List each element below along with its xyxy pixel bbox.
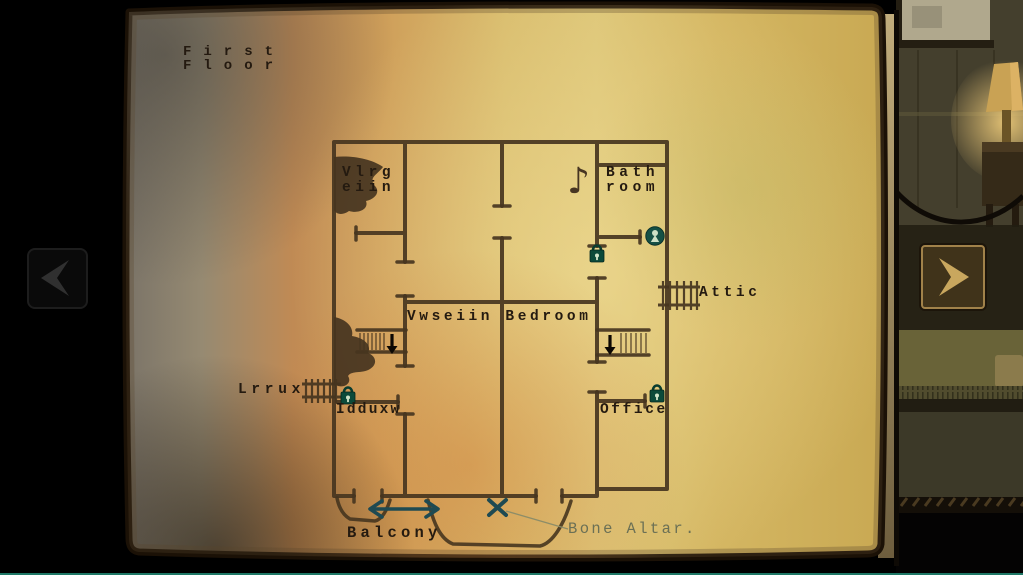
map-title-line2: Floor	[183, 59, 285, 73]
room-label-balcony: Balcony	[347, 524, 442, 542]
keyhole-marker-icon	[646, 227, 664, 245]
picture-art	[912, 6, 942, 28]
bed-dark-band	[896, 399, 1023, 413]
nightstand-body	[982, 152, 1023, 206]
map-title: First Floor	[183, 45, 285, 73]
map-title-line1: First	[183, 45, 285, 59]
bed-pillow	[995, 355, 1023, 387]
picture-frame-edge-bottom	[896, 40, 994, 48]
bed-fringe	[896, 386, 1023, 401]
bed-rope-trim	[896, 497, 1023, 514]
room-label-vlrgeiin-line1: Vlrg	[342, 166, 395, 181]
room-label-bathroom-line2: room	[606, 181, 659, 196]
room-label-bedroom: Vwseiin Bedroom	[407, 309, 592, 325]
paper-edge-seam	[894, 10, 899, 566]
room-label-bathroom: Bath room	[606, 166, 659, 195]
room-label-vlrgeiin-line2: eiin	[342, 181, 395, 196]
map-paper	[120, 0, 900, 575]
next-floor-button[interactable]	[921, 245, 985, 309]
music-note-icon: ♪	[567, 161, 590, 202]
game-screen: ♪ First Floor Vlrg eiin Bath room Vwseii…	[0, 0, 1023, 575]
screen-art: ♪	[0, 0, 1023, 575]
room-label-idduxw: Idduxw	[336, 402, 401, 418]
annotation-bone-altar: Bone Altar.	[568, 520, 697, 538]
room-label-vlrgeiin: Vlrg eiin	[342, 166, 395, 195]
room-label-bathroom-line1: Bath	[606, 166, 659, 181]
room-label-lrrux: Lrrux	[238, 382, 305, 398]
bed-blanket-lower	[896, 412, 1023, 498]
scene-floor	[896, 513, 1023, 575]
picture-frame	[896, 0, 990, 44]
room-label-attic: Attic	[699, 285, 761, 301]
prev-floor-button[interactable]	[27, 248, 88, 309]
chevron-right-icon	[923, 247, 983, 307]
lamp-stand	[1002, 110, 1011, 144]
chevron-left-icon	[29, 250, 86, 307]
wall-panel-line	[917, 50, 919, 208]
room-label-office: Office	[600, 402, 668, 418]
